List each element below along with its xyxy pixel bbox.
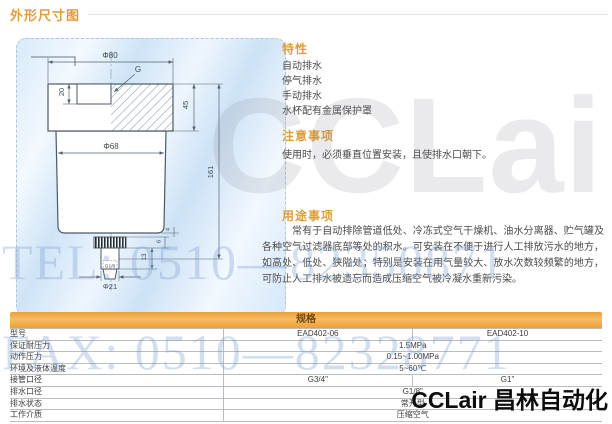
spec-label: 排水口径 [10, 386, 223, 398]
spec-value: 0.15~1.00MPa [223, 352, 602, 364]
spec-label: 接管口径 [10, 375, 223, 387]
spec-label: 型号 [10, 329, 223, 341]
spec-row: 动作压力0.15~1.00MPa [10, 352, 602, 364]
spec-label: 动作压力 [10, 352, 223, 364]
spec-row: 型号EAD402-06EAD402-10 [10, 329, 602, 341]
dim-head-height: 45 [181, 101, 190, 109]
dim-bottom-diameter: Φ21 [103, 282, 117, 291]
dimension-drawing-panel: G1/8 Φ80 G 20 45 Φ68 161 [16, 38, 286, 316]
spec-row: 保证耐压力1.5MPa [10, 340, 602, 352]
feature-item: 水杯配有金属保护罩 [282, 104, 372, 119]
hatched-section [111, 84, 173, 131]
spec-label: 环境及液体温度 [10, 363, 223, 375]
footer-logo: CCLair 昌林自动化 [411, 381, 608, 415]
datasheet-page: 外形尺寸图 [0, 0, 612, 424]
usage-body: 常有于自动排除管道低处、冷冻式空气干燥机、油水分离器、贮气罐及各种空气过滤器底部… [262, 224, 604, 288]
dim-total-height: 161 [206, 166, 215, 179]
spec-label: 排水状态 [10, 398, 223, 410]
dimension-drawing: G1/8 Φ80 G 20 45 Φ68 161 [17, 39, 285, 315]
dim-thread: G [135, 65, 141, 74]
knurled-nut [94, 237, 126, 248]
dim-gap: 4 [166, 228, 172, 231]
spec-value: EAD402-06 [223, 329, 412, 341]
spec-label: 保证耐压力 [10, 340, 223, 352]
dim-body-diameter: Φ68 [103, 142, 119, 151]
features-title: 特性 [282, 40, 308, 57]
feature-item: 停气排水 [282, 74, 372, 89]
notes-body: 使用时，必须垂直位置安装，且使排水口朝下。 [282, 148, 602, 163]
spec-value: EAD402-10 [413, 329, 602, 341]
page-title: 外形尺寸图 [10, 5, 80, 24]
spec-row: 环境及液体温度5~60℃ [10, 363, 602, 375]
dim-stem-height: 13 [142, 253, 148, 260]
thread-notch [77, 84, 111, 104]
feature-item: 自动排水 [282, 59, 372, 74]
usage-title: 用途事项 [282, 207, 334, 224]
features-list: 自动排水停气排水手动排水水杯配有金属保护罩 [282, 59, 372, 119]
feature-item: 手动排水 [282, 89, 372, 104]
drain-tip [103, 269, 117, 279]
spec-value: 5~60℃ [223, 363, 602, 375]
spec-value: 1.5MPa [223, 340, 602, 352]
spec-value: G3/4" [223, 375, 412, 387]
dim-thread-depth: 20 [57, 88, 66, 96]
dim-drain-thread: G1/8 [105, 264, 116, 270]
datum-mark [31, 57, 75, 66]
notes-title: 注意事项 [282, 127, 334, 144]
dim-knurl-height: 6 [157, 240, 163, 243]
title-rule [88, 14, 608, 15]
spec-table-title: 规格 [10, 312, 602, 328]
spec-label: 工作介质 [10, 410, 223, 422]
dim-top-diameter: Φ80 [102, 51, 118, 60]
